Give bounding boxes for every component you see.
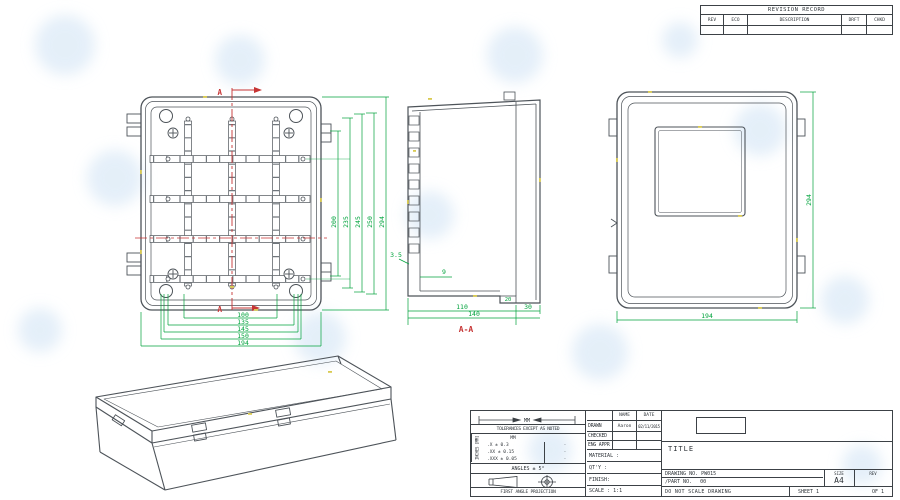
revision-table-title: REVISION RECORD bbox=[701, 6, 892, 15]
do-not-scale-note: DO NOT SCALE DRAWING bbox=[661, 486, 789, 496]
sheet-label: SHEET 1 bbox=[798, 489, 819, 495]
revision-col-rev: REV bbox=[701, 15, 723, 25]
checked-label: CHECKED bbox=[587, 431, 612, 440]
dim-front-235: 235 bbox=[342, 216, 350, 228]
first-angle-symbol bbox=[471, 475, 584, 487]
part-no-value: 00 bbox=[700, 479, 706, 485]
finish-label: FINISH: bbox=[587, 473, 661, 485]
dim-front-200: 200 bbox=[330, 216, 338, 228]
sheet-cell: SHEET 1 OF 1 bbox=[789, 486, 892, 496]
scale-label: SCALE : 1:1 bbox=[587, 485, 661, 496]
dim-front-194: 194 bbox=[237, 339, 249, 347]
dim-section-30: 30 bbox=[524, 303, 532, 311]
dimension-style-symbol: MM bbox=[471, 411, 586, 424]
side-units-label: INCHES [MM] bbox=[471, 434, 482, 462]
dim-front-250: 250 bbox=[366, 216, 374, 228]
section-view-label: A-A bbox=[459, 325, 474, 334]
revision-col-eco: ECO bbox=[723, 15, 747, 25]
tol-in-2: · bbox=[544, 449, 585, 456]
qty-label: QT'Y : bbox=[587, 461, 661, 473]
angles-tolerance: ANGLES ± 5° bbox=[471, 463, 586, 473]
front-view bbox=[127, 97, 331, 310]
tolerance-table: INCHES [MM] MM .X ± 0.3 .XX ± 0.15 .XXX … bbox=[471, 433, 586, 463]
revision-col-chkd: CHKD bbox=[866, 15, 892, 25]
drawing-sheet: A A 200 235 245 250 294 100 135 145 150 … bbox=[0, 0, 900, 500]
dim-section-140: 140 bbox=[468, 310, 480, 318]
date-header: DATE bbox=[636, 411, 661, 420]
dim-front-245: 245 bbox=[354, 216, 362, 228]
latch-tabs bbox=[321, 124, 331, 281]
revision-empty-row bbox=[701, 25, 723, 34]
isometric-view bbox=[96, 356, 396, 490]
projection-symbols bbox=[471, 473, 586, 487]
dim-section-3-5: 3.5 bbox=[390, 251, 402, 259]
tol-row-2: .XX ± 0.15 bbox=[487, 449, 544, 456]
sheet-of-label: OF 1 bbox=[872, 489, 884, 495]
dim-back-194: 194 bbox=[701, 312, 713, 320]
rev-cell: REV bbox=[854, 469, 892, 486]
part-no-label: /PART NO. bbox=[665, 479, 692, 485]
size-value: A4 bbox=[825, 475, 853, 486]
revision-table: REVISION RECORD REV ECO DESCRIPTION DRFT… bbox=[700, 5, 893, 35]
projection-label: FIRST ANGLE PROJECTION bbox=[471, 487, 586, 496]
drawing-no-value: PW015 bbox=[701, 471, 716, 477]
dim-section-110: 110 bbox=[456, 303, 468, 311]
drawing-number-cell: DRAWING NO. PW015 /PART NO. 00 bbox=[661, 469, 824, 486]
dim-front-294: 294 bbox=[378, 216, 386, 228]
dim-section-20: 20 bbox=[505, 297, 512, 303]
dim-arrows: MM bbox=[471, 413, 584, 424]
tol-in-1: · bbox=[544, 442, 585, 449]
revision-col-drft: DRFT bbox=[841, 15, 866, 25]
section-mark-bottom-label: A bbox=[217, 305, 222, 314]
tolerances-note: TOLERANCES EXCEPT AS NOTED bbox=[471, 424, 586, 433]
rev-label: REV bbox=[855, 470, 891, 476]
logo-box bbox=[696, 417, 746, 434]
dim-section-9: 9 bbox=[442, 268, 446, 276]
drawing-no-label: DRAWING NO. bbox=[665, 471, 698, 477]
drawn-date: 02/11/2015 bbox=[636, 420, 661, 431]
tol-in-3: · bbox=[544, 456, 585, 463]
eng-appr-label: ENG APPR bbox=[587, 440, 612, 449]
title-label: TITLE bbox=[661, 441, 892, 469]
tol-col-header: MM bbox=[482, 434, 544, 442]
name-header: NAME bbox=[612, 411, 636, 420]
section-view-dimensions: 3.5 9 20 110 30 140 bbox=[390, 251, 540, 325]
size-cell: SIZE A4 bbox=[824, 469, 854, 486]
title-block: MM TOLERANCES EXCEPT AS NOTED INCHES [MM… bbox=[470, 410, 893, 497]
dim-back-294: 294 bbox=[805, 194, 813, 206]
section-mark-top-label: A bbox=[217, 88, 222, 97]
logo-area bbox=[661, 411, 892, 441]
drawn-label: DRAWN bbox=[587, 420, 612, 431]
vertex-ticks bbox=[140, 91, 798, 415]
revision-col-description: DESCRIPTION bbox=[747, 15, 841, 25]
drawn-name: Aaron bbox=[612, 420, 636, 431]
tol-row-1: .X ± 0.3 bbox=[487, 442, 544, 449]
material-label: MATERIAL : bbox=[587, 449, 661, 461]
iso-latch-tabs bbox=[112, 408, 290, 441]
tol-row-3: .XXX ± 0.05 bbox=[487, 456, 544, 463]
